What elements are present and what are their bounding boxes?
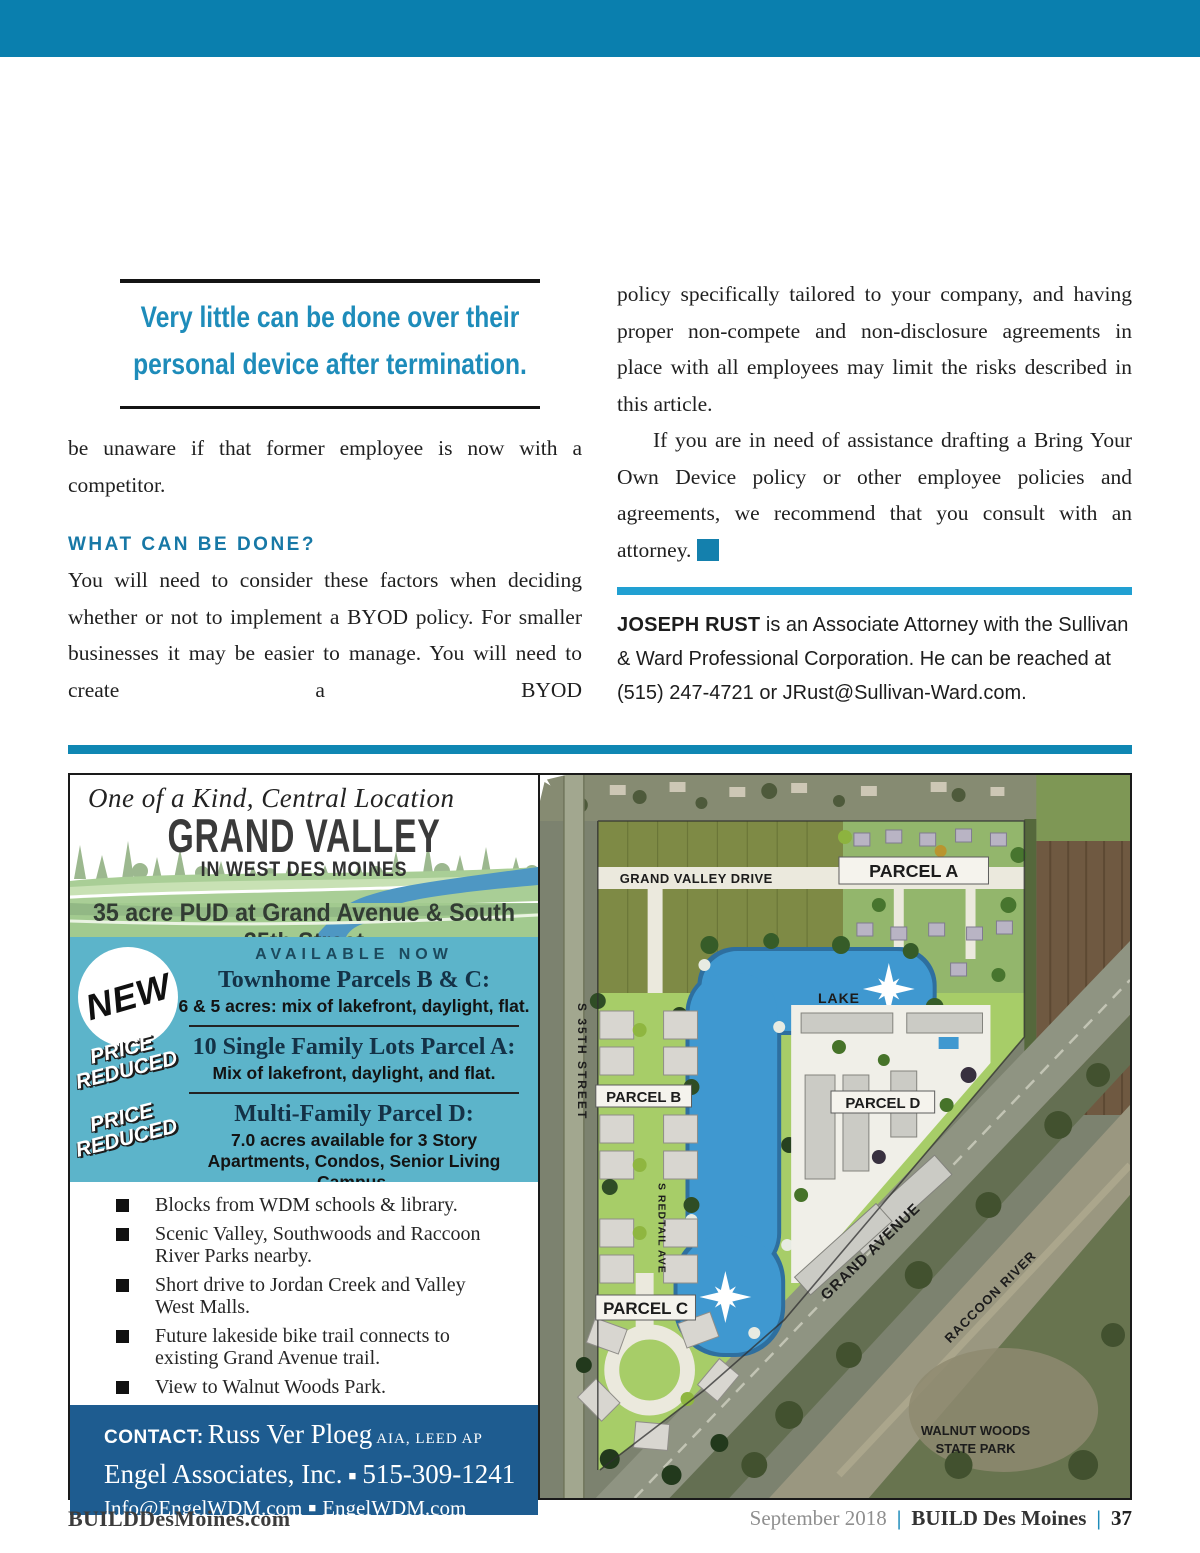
offer-1-title: Townhome Parcels B & C: [178, 966, 530, 994]
site-plan-map: GRAND VALLEY DRIVE PARCEL A LAKE PARCEL … [540, 775, 1130, 1498]
ad-title: GRAND VALLEY [136, 808, 473, 863]
bullet-text: Short drive to Jordan Creek and Valley W… [155, 1274, 485, 1318]
magazine-page: Very little can be done over their perso… [0, 0, 1200, 1553]
pullquote-rule-top [120, 279, 540, 283]
contact-company: Engel Associates, Inc. [104, 1459, 342, 1489]
list-item: View to Walnut Woods Park. [116, 1376, 538, 1398]
section-heading: WHAT CAN BE DONE? [68, 534, 316, 556]
map-label-parcel-c: PARCEL C [603, 1299, 688, 1318]
author-name: JOSEPH RUST [617, 614, 760, 636]
contact-name: Russ Ver Ploeg [208, 1419, 373, 1449]
map-label-s35th: S 35TH STREET [575, 1003, 589, 1120]
price-reduced-badge-1: PRICE REDUCED [67, 1027, 182, 1094]
square-bullet-icon [116, 1381, 129, 1394]
square-bullet-icon [116, 1330, 129, 1343]
footer-page-number: 37 [1111, 1506, 1132, 1530]
ad-offers-panel: NEW PRICE REDUCED PRICE REDUCED AVAILABL… [70, 937, 538, 1182]
bullet-text: View to Walnut Woods Park. [155, 1376, 485, 1398]
map-label-parcel-b: PARCEL B [606, 1089, 681, 1106]
list-item: Short drive to Jordan Creek and Valley W… [116, 1274, 538, 1318]
ad-left-panel: One of a Kind, Central Location GRAND VA… [70, 775, 540, 1498]
ad-bullet-list: Blocks from WDM schools & library. Sceni… [70, 1182, 538, 1405]
left-paragraph-1: be unaware if that former employee is no… [68, 430, 582, 503]
separator-square-icon: ■ [302, 1500, 322, 1515]
footer-date: September 2018 [750, 1506, 887, 1530]
grand-valley-ad: One of a Kind, Central Location GRAND VA… [68, 773, 1132, 1500]
site-plan-svg: GRAND VALLEY DRIVE PARCEL A LAKE PARCEL … [540, 775, 1130, 1498]
new-badge-label: NEW [80, 965, 175, 1029]
map-label-redtail: S REDTAIL AVE [656, 1183, 667, 1274]
pull-quote-line1: Very little can be done over their [120, 294, 540, 341]
available-now-label: AVAILABLE NOW [178, 946, 530, 964]
offer-1-desc: 6 & 5 acres: mix of lakefront, daylight,… [178, 996, 530, 1017]
bio-rule [617, 587, 1132, 595]
offer-2-title: 10 Single Family Lots Parcel A: [178, 1033, 530, 1061]
bullet-text: Future lakeside bike trail connects to e… [155, 1325, 485, 1369]
contact-website[interactable]: EngelWDM.com [322, 1496, 466, 1520]
contact-line-1: CONTACT: Russ Ver Ploeg AIA, LEED AP [104, 1417, 538, 1457]
price-reduced-badge-2: PRICE REDUCED [67, 1095, 182, 1162]
ad-subtitle: IN WEST DES MOINES [105, 858, 503, 882]
square-bullet-icon [116, 1228, 129, 1241]
footer-site-link[interactable]: BUILDDesMoines.com [68, 1506, 290, 1532]
footer-right: September 2018|BUILD Des Moines|37 [750, 1506, 1132, 1531]
left-paragraph-2: You will need to consider these factors … [68, 562, 582, 708]
pull-quote: Very little can be done over their perso… [120, 294, 540, 388]
map-label-parcel-a: PARCEL A [869, 861, 958, 881]
end-of-article-mark: B [697, 539, 719, 561]
footer-separator: | [887, 1506, 912, 1530]
pull-quote-line2: personal device after termination. [120, 341, 540, 388]
list-item: Future lakeside bike trail connects to e… [116, 1325, 538, 1369]
offers-list: AVAILABLE NOW Townhome Parcels B & C: 6 … [178, 937, 530, 1193]
list-item: Blocks from WDM schools & library. [116, 1194, 538, 1216]
ad-divider-rule [68, 745, 1132, 754]
contact-block: CONTACT: Russ Ver Ploeg AIA, LEED AP Eng… [70, 1405, 538, 1515]
offer-divider-2 [189, 1092, 519, 1094]
map-label-walnut-woods-1: WALNUT WOODS [921, 1423, 1031, 1438]
contact-phone[interactable]: 515-309-1241 [362, 1459, 515, 1489]
bullet-text: Scenic Valley, Southwoods and Raccoon Ri… [155, 1223, 485, 1267]
parcel-d-pool [939, 1037, 959, 1049]
right-column: policy specifically tailored to your com… [617, 276, 1132, 568]
contact-line-2: Engel Associates, Inc.■515-309-1241 [104, 1457, 538, 1493]
contact-credentials: AIA, LEED AP [376, 1431, 483, 1447]
list-item: Scenic Valley, Southwoods and Raccoon Ri… [116, 1223, 538, 1267]
ad-header: One of a Kind, Central Location GRAND VA… [70, 775, 538, 937]
author-bio: JOSEPH RUST is an Associate Attorney wit… [617, 608, 1132, 710]
pullquote-rule-bottom [120, 406, 540, 409]
bullet-text: Blocks from WDM schools & library. [155, 1194, 485, 1216]
right-paragraph-2-text: If you are in need of assistance draftin… [617, 428, 1132, 562]
offer-divider-1 [189, 1025, 519, 1027]
map-label-walnut-woods-2: STATE PARK [936, 1441, 1016, 1456]
footer-separator: | [1086, 1506, 1111, 1530]
right-paragraph-2: If you are in need of assistance draftin… [617, 422, 1132, 568]
offer-3-title: Multi-Family Parcel D: [178, 1100, 530, 1128]
top-blue-bar [0, 0, 1200, 57]
separator-square-icon: ■ [342, 1468, 362, 1483]
footer-magazine-name: BUILD Des Moines [911, 1506, 1086, 1530]
map-label-parcel-d: PARCEL D [845, 1095, 920, 1112]
square-bullet-icon [116, 1199, 129, 1212]
map-label-drive: GRAND VALLEY DRIVE [620, 871, 773, 886]
map-label-lake: LAKE [818, 990, 860, 1006]
right-paragraph-1: policy specifically tailored to your com… [617, 276, 1132, 422]
s35th-street-road [564, 775, 584, 1498]
offer-2-desc: Mix of lakefront, daylight, and flat. [178, 1063, 530, 1084]
square-bullet-icon [116, 1279, 129, 1292]
contact-label: CONTACT: [104, 1427, 204, 1448]
